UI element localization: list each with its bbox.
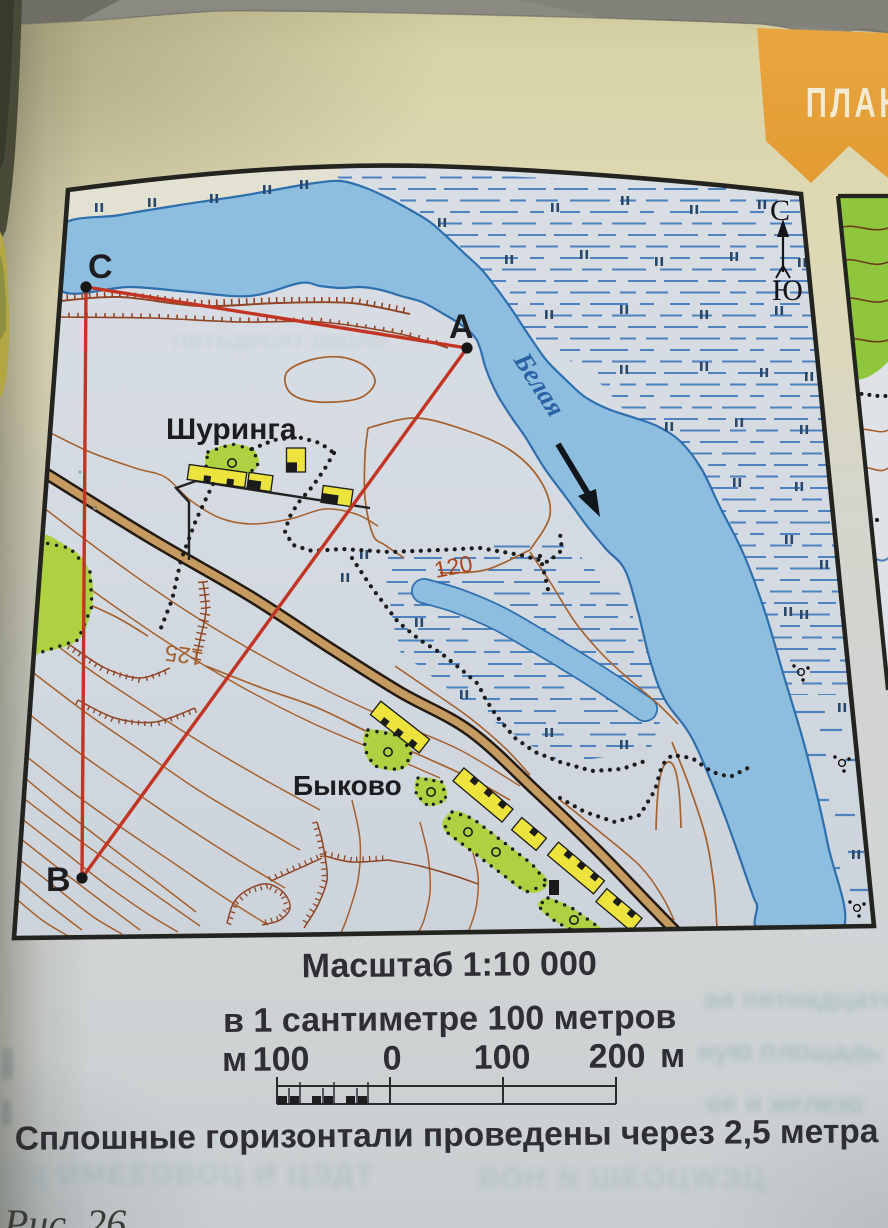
svg-text:ВОН N ШЕОЦWЭЦ: ВОН N ШЕОЦWЭЦ xyxy=(478,1163,766,1195)
svg-text:ПЛАНЫ: ПЛАНЫ xyxy=(806,79,888,127)
svg-text:Ю: Ю xyxy=(772,274,803,307)
svg-text:С: С xyxy=(770,194,790,227)
svg-text:м: м xyxy=(660,1037,685,1075)
svg-text:Рис. 26: Рис. 26 xyxy=(3,1201,126,1228)
svg-text:м: м xyxy=(222,1041,247,1079)
svg-text:ЕЦ ИМЕЕОВОЦ И ЦЭДТ: ЕЦ ИМЕЕОВОЦ И ЦЭДТ xyxy=(4,1159,375,1191)
svg-text:200: 200 xyxy=(589,1037,646,1075)
svg-text:А: А xyxy=(449,308,474,346)
svg-text:100: 100 xyxy=(253,1040,310,1078)
svg-text:Масштаб 1:10 000: Масштаб 1:10 000 xyxy=(302,945,597,986)
svg-text:В: В xyxy=(46,861,71,899)
svg-text:ную площадь: ную площадь xyxy=(698,1036,881,1066)
svg-text:100: 100 xyxy=(474,1038,531,1076)
svg-text:125: 125 xyxy=(163,640,205,671)
svg-text:ая пятнадцать: ая пятнадцать xyxy=(704,984,888,1014)
svg-text:С: С xyxy=(88,248,113,286)
svg-text:Шуринга: Шуринга xyxy=(166,413,297,446)
svg-text:Быково: Быково xyxy=(293,770,402,801)
svg-text:0: 0 xyxy=(382,1039,401,1077)
svg-text:Сплошные горизонтали проведены: Сплошные горизонтали проведены через 2,5… xyxy=(15,1113,879,1158)
svg-text:в 1 сантиметре 100 метров: в 1 сантиметре 100 метров xyxy=(223,998,677,1040)
